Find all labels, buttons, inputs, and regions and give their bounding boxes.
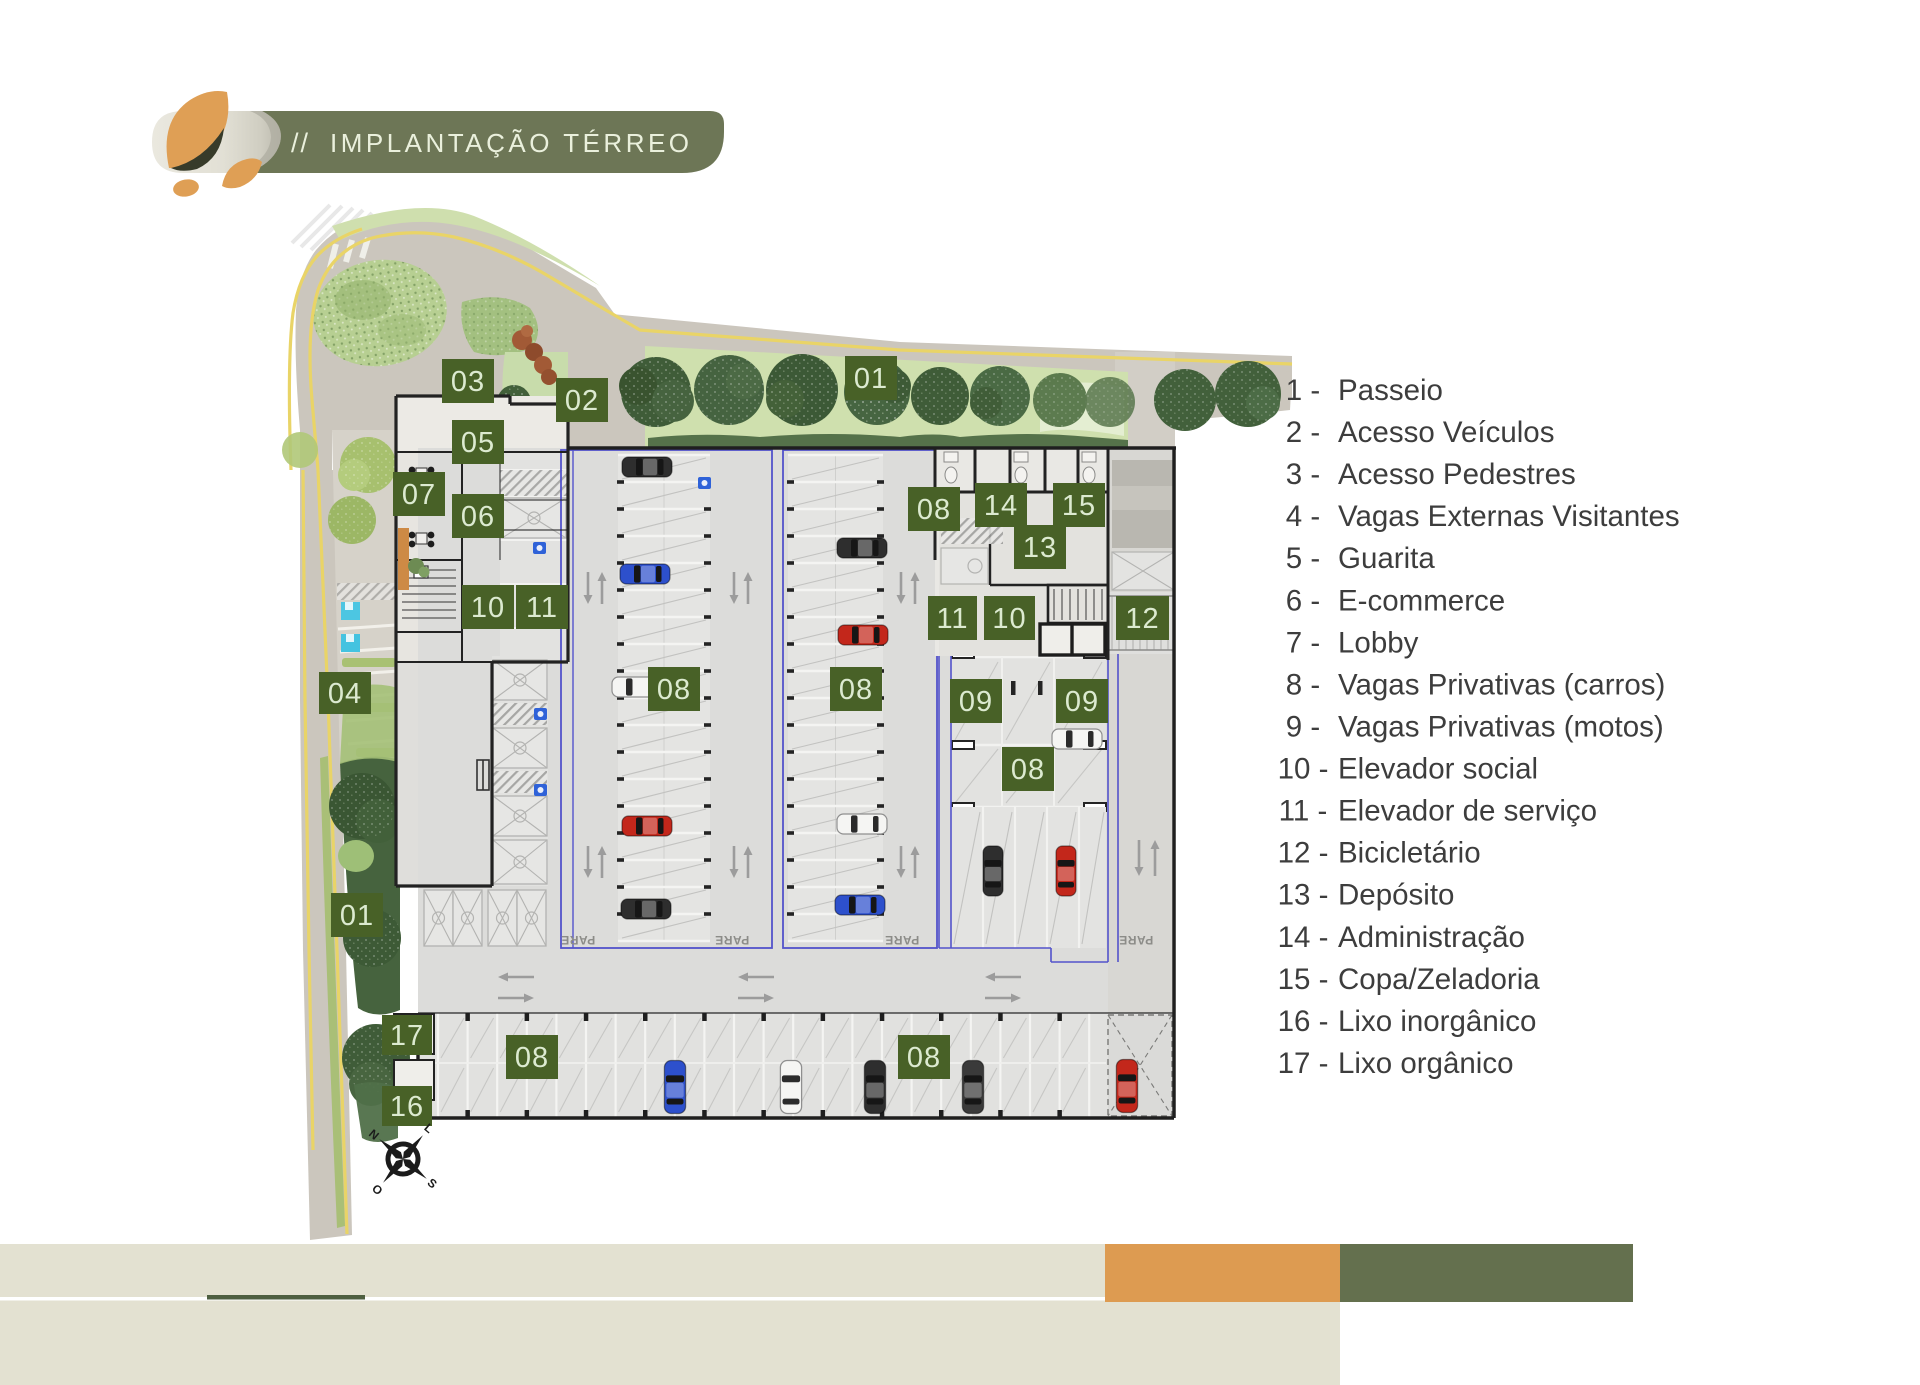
svg-text:8 -: 8 - [1286,668,1320,701]
svg-text:Depósito: Depósito [1338,879,1454,912]
svg-text:09: 09 [959,686,993,718]
svg-text:Vagas Externas Visitantes: Vagas Externas Visitantes [1338,500,1680,533]
svg-text:PARE: PARE [1119,933,1153,947]
svg-text:Copa/Zeladoria: Copa/Zeladoria [1338,963,1540,996]
svg-text:Passeio: Passeio [1338,374,1443,407]
svg-text:Guarita: Guarita [1338,542,1435,575]
svg-text:10 -: 10 - [1278,753,1329,786]
svg-text:Lobby: Lobby [1338,626,1419,659]
svg-text:03: 03 [451,366,485,398]
svg-text:3 -: 3 - [1286,458,1320,491]
svg-text:11: 11 [936,603,968,635]
svg-text:5 -: 5 - [1286,542,1320,575]
svg-text:14: 14 [984,490,1018,522]
svg-text:13: 13 [1023,532,1057,564]
svg-text:02: 02 [565,385,599,417]
svg-text:9 -: 9 - [1286,711,1320,744]
svg-text:15: 15 [1062,490,1096,522]
svg-text:1 -: 1 - [1286,374,1320,407]
svg-text:11: 11 [526,592,558,624]
svg-text:08: 08 [1011,754,1045,786]
svg-text:16 -: 16 - [1278,1005,1329,1038]
svg-text:09: 09 [1065,686,1099,718]
svg-text://: // [291,128,310,158]
svg-text:13 -: 13 - [1278,879,1329,912]
svg-text:Elevador social: Elevador social [1338,753,1538,786]
svg-text:05: 05 [461,427,495,459]
svg-text:6 -: 6 - [1286,584,1320,617]
svg-text:10: 10 [471,592,505,624]
svg-text:06: 06 [461,501,495,533]
svg-text:01: 01 [340,900,374,932]
svg-text:10: 10 [992,603,1026,635]
svg-text:Administração: Administração [1338,921,1525,954]
svg-text:7 -: 7 - [1286,626,1320,659]
svg-text:Elevador de serviço: Elevador de serviço [1338,795,1597,828]
svg-text:07: 07 [402,479,436,511]
svg-text:11 -: 11 - [1279,795,1328,828]
svg-text:01: 01 [854,363,888,395]
svg-text:16: 16 [390,1091,424,1123]
svg-text:E-commerce: E-commerce [1338,584,1505,617]
svg-text:12 -: 12 - [1278,837,1329,870]
svg-text:15 -: 15 - [1278,963,1329,996]
svg-text:08: 08 [917,494,951,526]
svg-text:IMPLANTAÇÃO TÉRREO: IMPLANTAÇÃO TÉRREO [330,128,693,158]
svg-text:17: 17 [390,1020,424,1052]
svg-text:08: 08 [839,674,873,706]
svg-text:Bicicletário: Bicicletário [1338,837,1481,870]
svg-text:17 -: 17 - [1278,1047,1329,1080]
svg-text:2 -: 2 - [1286,416,1320,449]
svg-text:4 -: 4 - [1286,500,1320,533]
svg-text:Acesso Pedestres: Acesso Pedestres [1338,458,1576,491]
svg-text:PARE: PARE [561,933,595,947]
svg-text:Acesso Veículos: Acesso Veículos [1338,416,1554,449]
svg-text:PARE: PARE [715,933,749,947]
svg-text:08: 08 [657,674,691,706]
svg-text:12: 12 [1125,603,1159,635]
svg-text:14 -: 14 - [1278,921,1329,954]
svg-text:Vagas Privativas (carros): Vagas Privativas (carros) [1338,668,1665,701]
svg-text:08: 08 [907,1042,941,1074]
svg-text:Lixo orgânico: Lixo orgânico [1338,1047,1513,1080]
svg-text:04: 04 [328,678,362,710]
svg-text:PARE: PARE [885,933,919,947]
svg-text:Vagas Privativas (motos): Vagas Privativas (motos) [1338,711,1664,744]
svg-text:Lixo inorgânico: Lixo inorgânico [1338,1005,1536,1038]
svg-text:08: 08 [515,1042,549,1074]
